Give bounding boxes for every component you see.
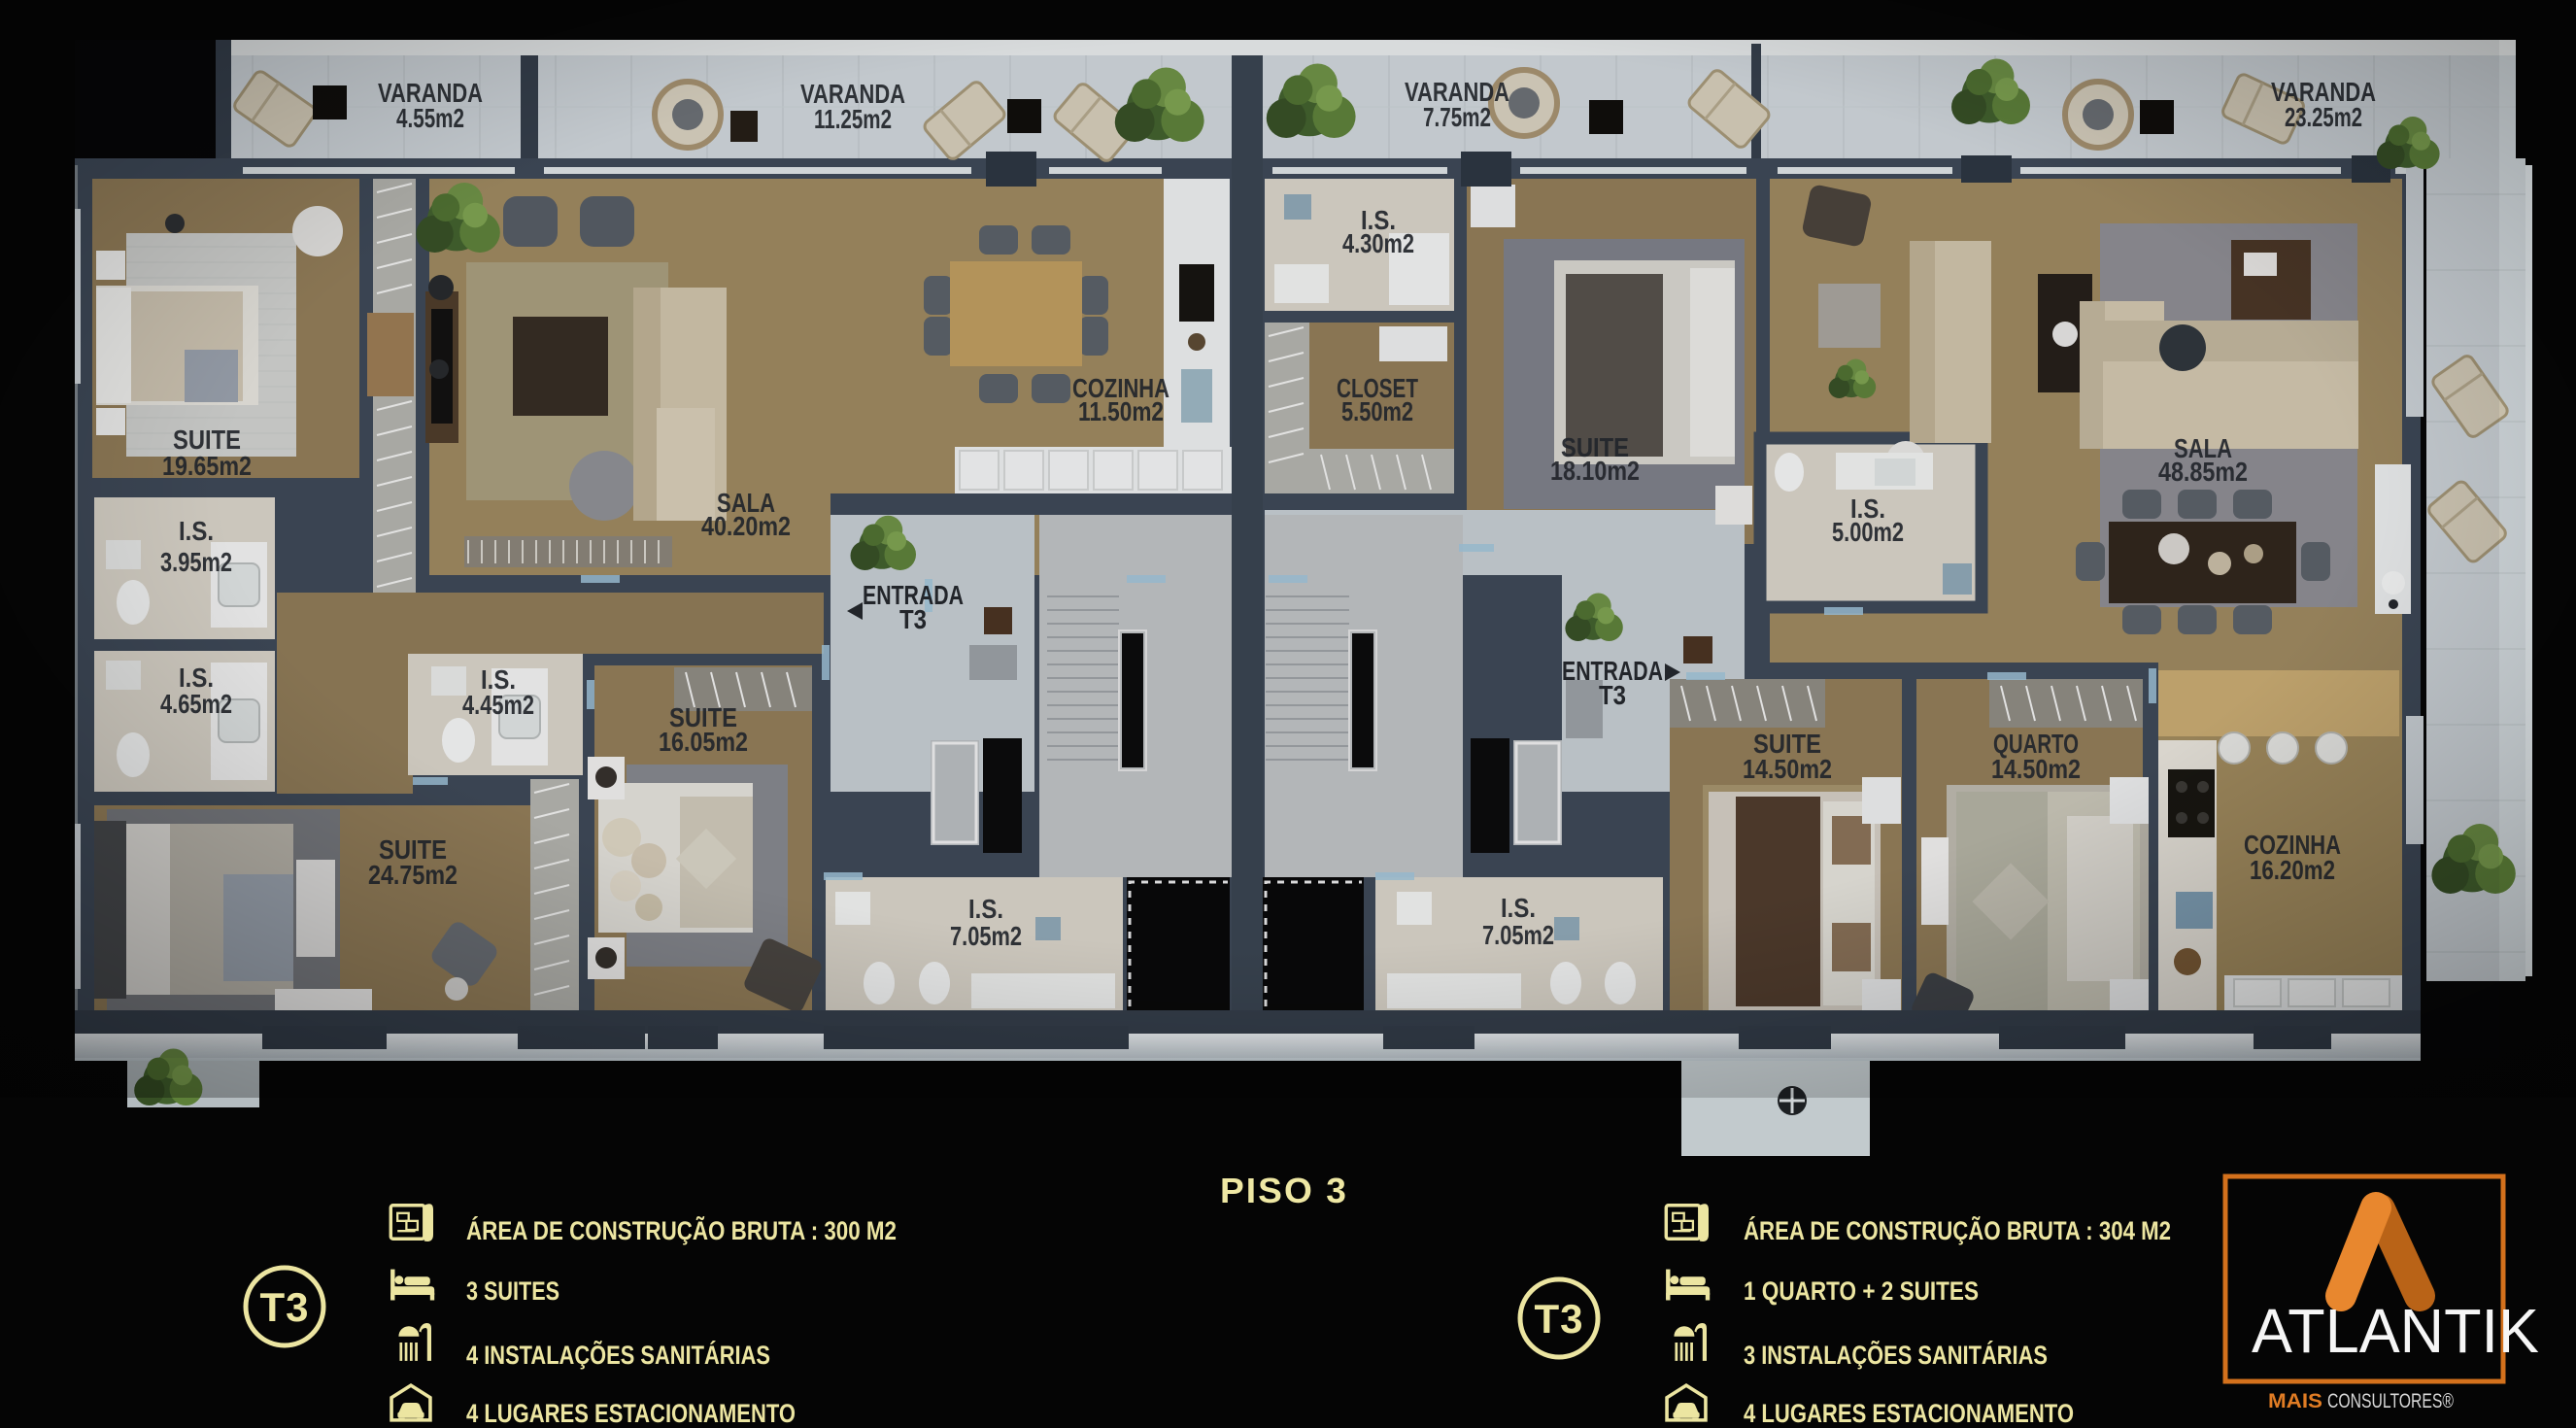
svg-text:ATLANTIK: ATLANTIK bbox=[2252, 1296, 2539, 1366]
svg-text:3 INSTALAÇÕES SANITÁRIAS: 3 INSTALAÇÕES SANITÁRIAS bbox=[1744, 1340, 2048, 1370]
svg-text:4 LUGARES ESTACIONAMENTO: 4 LUGARES ESTACIONAMENTO bbox=[1744, 1399, 2074, 1428]
svg-text:PISO 3: PISO 3 bbox=[1220, 1171, 1348, 1210]
svg-text:T3: T3 bbox=[1534, 1296, 1583, 1342]
svg-text:1 QUARTO + 2 SUITES: 1 QUARTO + 2 SUITES bbox=[1744, 1276, 1979, 1306]
svg-text:ÁREA DE CONSTRUÇÃO BRUTA : 30: ÁREA DE CONSTRUÇÃO BRUTA : 300 M2 bbox=[466, 1215, 897, 1245]
svg-text:MAIS: MAIS bbox=[2268, 1390, 2322, 1412]
svg-text:CONSULTORES®: CONSULTORES® bbox=[2327, 1390, 2454, 1412]
svg-text:ÁREA DE CONSTRUÇÃO BRUTA : 30: ÁREA DE CONSTRUÇÃO BRUTA : 304 M2 bbox=[1744, 1215, 2171, 1245]
svg-text:4 INSTALAÇÕES SANITÁRIAS: 4 INSTALAÇÕES SANITÁRIAS bbox=[466, 1340, 770, 1370]
svg-text:T3: T3 bbox=[259, 1284, 309, 1330]
svg-text:4 LUGARES ESTACIONAMENTO: 4 LUGARES ESTACIONAMENTO bbox=[466, 1399, 796, 1428]
svg-text:3 SUITES: 3 SUITES bbox=[466, 1276, 559, 1306]
